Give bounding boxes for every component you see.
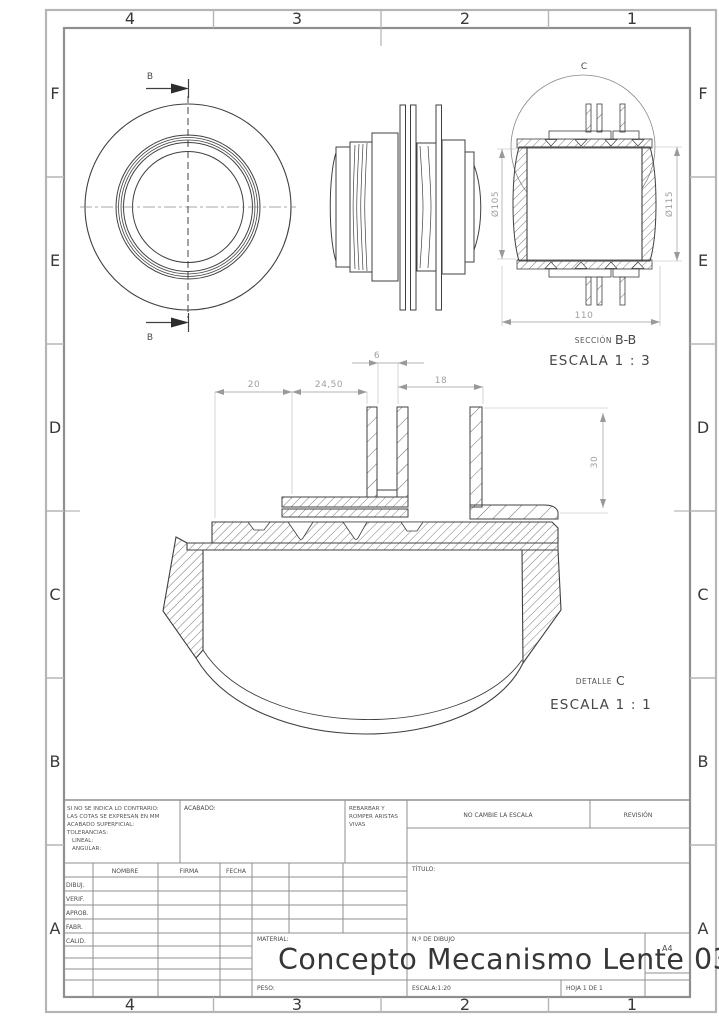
row-label: APROB. — [66, 910, 89, 917]
zone-row-label: C — [49, 585, 60, 604]
side-view — [330, 105, 481, 310]
section-caption-name: B-B — [615, 332, 636, 347]
title-block: SI NO SE INDICA LO CONTRARIO: LAS COTAS … — [64, 800, 719, 997]
detail-caption-scale: ESCALA 1 : 1 — [550, 697, 652, 713]
zone-col-label: 3 — [292, 9, 302, 28]
fin — [411, 105, 417, 310]
tolerance-line: ANGULAR: — [72, 846, 101, 852]
revision-label: REVISIÓN — [624, 812, 653, 819]
zone-col-label: 4 — [125, 9, 135, 28]
titulo-label: TÍTULO: — [411, 866, 435, 873]
deburr-note: REBARBAR Y ROMPER ARISTAS VIVAS — [349, 806, 398, 828]
col-fecha: FECHA — [226, 868, 247, 875]
section-cut-label-top: B — [147, 72, 153, 82]
dim-110: 110 — [575, 311, 594, 321]
zone-row-label: A — [50, 919, 61, 938]
row-label: FABR. — [66, 924, 83, 931]
detail-view: 20 24,50 6 18 30 DETALLE C ESCALA 1 : 1 — [163, 351, 652, 734]
zone-col-label: 1 — [627, 9, 637, 28]
tolerance-note: SI NO SE INDICA LO CONTRARIO: LAS COTAS … — [66, 806, 160, 852]
hoja-label: HOJA 1 DE 1 — [566, 985, 603, 992]
tolerance-line: LINEAL: — [72, 838, 93, 844]
section-caption-prefix: SECCIÓN — [575, 336, 612, 345]
deburr-line: VIVAS — [349, 822, 366, 828]
zone-row-label: A — [698, 919, 709, 938]
drawing-number: Concepto Mecanismo Lente 03. — [278, 943, 719, 976]
num-dibujo-label: N.º DE DIBUJO — [412, 936, 455, 943]
section-cut-label-bottom: B — [147, 333, 153, 343]
zone-col-label: 2 — [460, 9, 470, 28]
dim-30: 30 — [590, 456, 600, 468]
section-arrow-bottom — [146, 313, 189, 332]
zone-row-label: C — [697, 585, 708, 604]
acabado-label: ACABADO: — [184, 805, 216, 812]
material-label: MATERIAL: — [257, 936, 289, 943]
section-caption-scale: ESCALA 1 : 3 — [549, 353, 651, 369]
dim-6: 6 — [374, 351, 380, 361]
zone-row-label: F — [50, 84, 59, 103]
deburr-line: REBARBAR Y — [349, 806, 385, 812]
col-firma: FIRMA — [180, 868, 200, 875]
zone-col-label: 1 — [627, 995, 637, 1014]
dimension-lines — [215, 363, 603, 508]
no-cambie-label: NO CAMBIE LA ESCALA — [463, 812, 533, 819]
dim-20: 20 — [248, 380, 260, 390]
row-label: CALID. — [66, 938, 86, 945]
tolerance-line: LAS COTAS SE EXPRESAN EN MM — [67, 814, 160, 820]
zone-row-label: B — [50, 752, 61, 771]
col-nombre: NOMBRE — [112, 868, 139, 875]
tolerance-line: ACABADO SUPERFICIAL: — [67, 822, 134, 828]
extension-lines — [215, 363, 608, 518]
dim-dia115: Ø115 — [664, 191, 675, 217]
detail-caption-name: C — [616, 673, 625, 688]
row-label: VERIF. — [66, 896, 84, 903]
zone-col-label: 4 — [125, 995, 135, 1014]
zone-row-label: F — [698, 84, 707, 103]
peso-label: PESO: — [257, 985, 275, 992]
fin — [400, 105, 406, 310]
detail-caption-prefix: DETALLE — [576, 677, 612, 686]
tolerance-line: TOLERANCIAS: — [66, 830, 108, 836]
dim-dia105: Ø105 — [490, 191, 501, 217]
detail-circle-label: C — [581, 62, 587, 72]
tolerance-line: SI NO SE INDICA LO CONTRARIO: — [67, 806, 159, 812]
drawing-sheet: 4 3 2 1 4 3 2 1 F E D C B A F E D C B A — [0, 0, 719, 1024]
row-label: DIBUJ. — [66, 882, 85, 889]
zone-row-label: E — [50, 251, 60, 270]
escala-label: ESCALA:1:20 — [412, 985, 451, 992]
fin — [436, 105, 442, 310]
dim-24-50: 24,50 — [315, 380, 343, 390]
zone-row-label: B — [698, 752, 709, 771]
section-view: C Ø105 — [490, 62, 682, 369]
zone-row-label: D — [49, 418, 61, 437]
zone-col-label: 2 — [460, 995, 470, 1014]
deburr-line: ROMPER ARISTAS — [349, 814, 398, 820]
drawing-canvas: 4 3 2 1 4 3 2 1 F E D C B A F E D C B A — [0, 0, 719, 1024]
zone-row-label: D — [697, 418, 709, 437]
zone-col-label: 3 — [292, 995, 302, 1014]
zone-row-label: E — [698, 251, 708, 270]
dim-18: 18 — [435, 376, 447, 386]
front-view: B B — [80, 72, 296, 343]
